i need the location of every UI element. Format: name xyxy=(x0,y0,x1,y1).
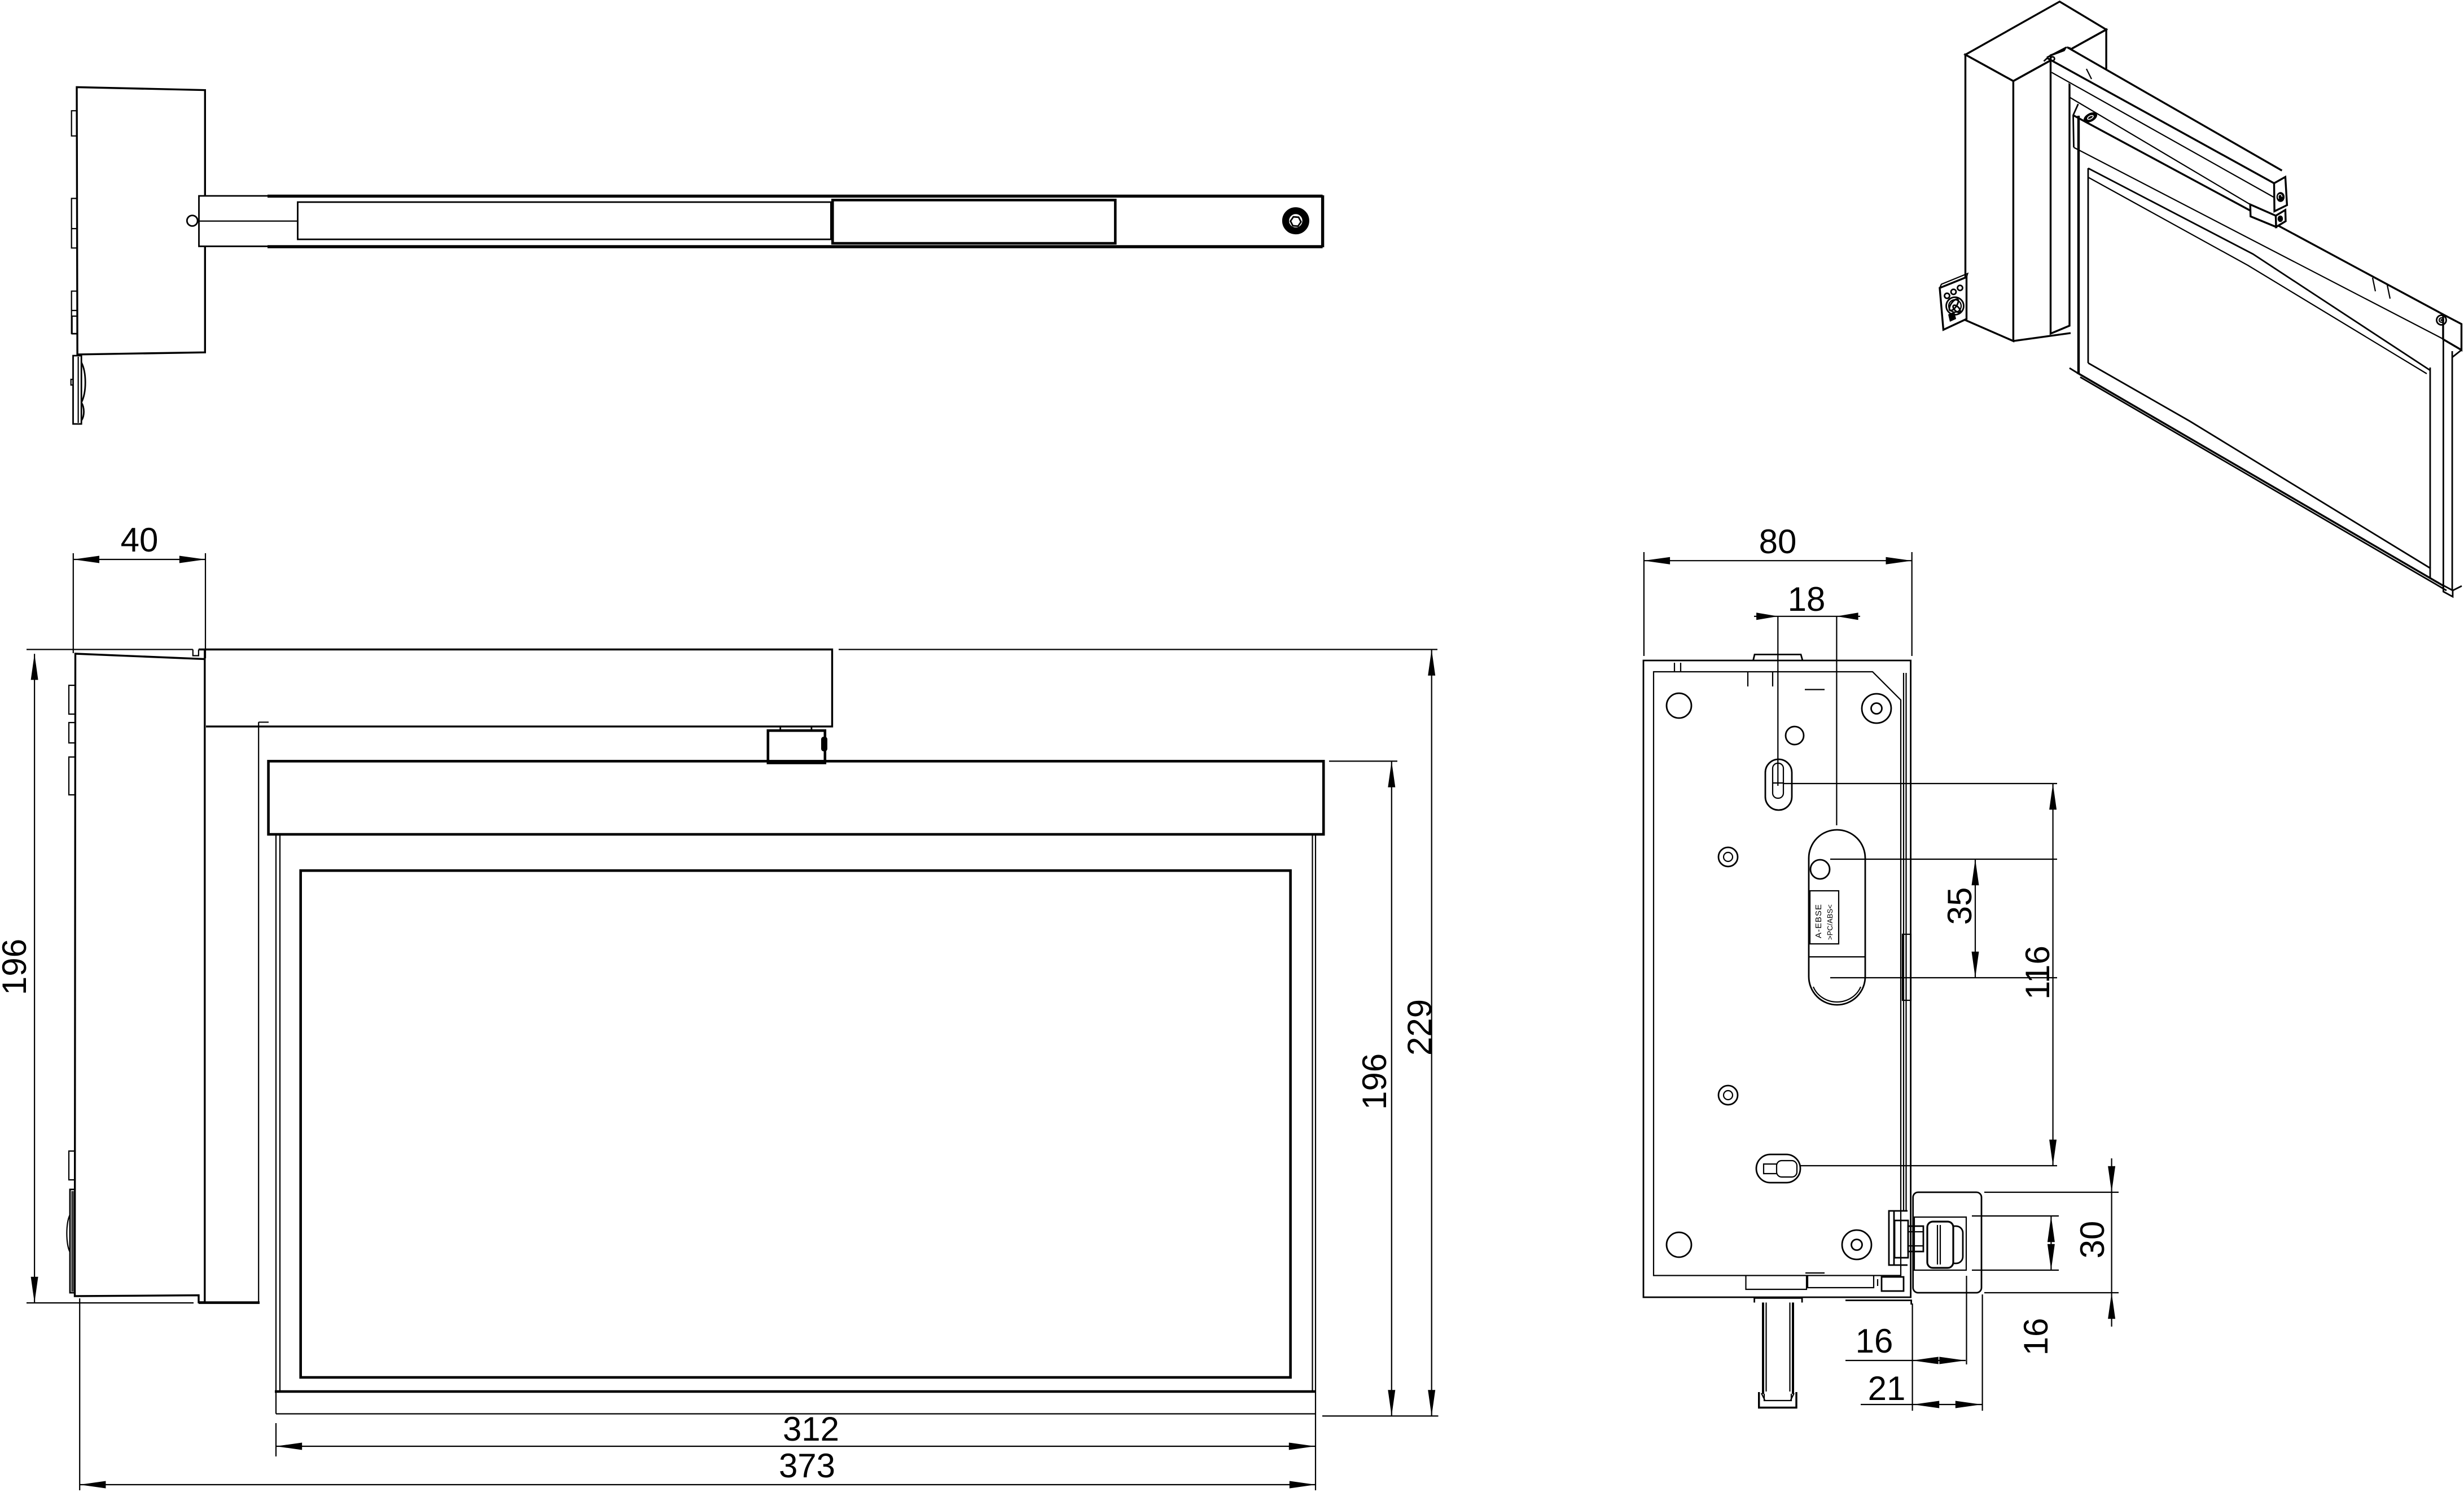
svg-text:373: 373 xyxy=(779,1447,835,1485)
svg-text:35: 35 xyxy=(1941,887,1979,925)
svg-text:80: 80 xyxy=(1759,523,1797,561)
svg-text:196: 196 xyxy=(1356,1053,1393,1110)
svg-text:30: 30 xyxy=(2073,1221,2111,1259)
svg-text:>PC/ABS<: >PC/ABS< xyxy=(1826,904,1834,940)
svg-text:116: 116 xyxy=(2019,946,2057,1000)
svg-text:312: 312 xyxy=(783,1410,839,1448)
svg-text:21: 21 xyxy=(1868,1370,1906,1407)
svg-text:A-EBSE: A-EBSE xyxy=(1814,904,1823,938)
svg-text:40: 40 xyxy=(121,521,159,559)
svg-text:196: 196 xyxy=(0,939,33,995)
svg-text:16: 16 xyxy=(2017,1318,2055,1356)
svg-text:18: 18 xyxy=(1788,580,1826,618)
svg-text:229: 229 xyxy=(1401,999,1439,1056)
svg-text:16: 16 xyxy=(1856,1322,1893,1360)
